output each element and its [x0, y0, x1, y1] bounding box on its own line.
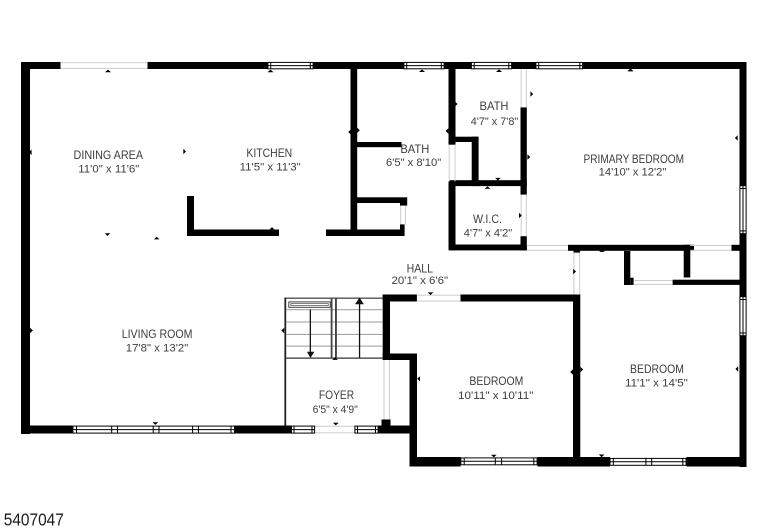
svg-text:17'8" x 13'2": 17'8" x 13'2" [126, 343, 189, 355]
svg-text:BEDROOM: BEDROOM [469, 375, 523, 388]
svg-text:BEDROOM: BEDROOM [630, 363, 684, 376]
svg-text:4'7" x 7'8": 4'7" x 7'8" [471, 116, 519, 128]
svg-text:PRIMARY BEDROOM: PRIMARY BEDROOM [584, 153, 685, 166]
svg-text:LIVING ROOM: LIVING ROOM [122, 328, 193, 341]
svg-text:20'1" x 6'6": 20'1" x 6'6" [392, 275, 449, 287]
svg-text:10'11" x 10'11": 10'11" x 10'11" [458, 390, 533, 402]
svg-text:11'5" x 11'3": 11'5" x 11'3" [240, 162, 301, 174]
svg-text:4'7" x 4'2": 4'7" x 4'2" [464, 227, 512, 239]
svg-text:BATH: BATH [480, 100, 509, 113]
svg-text:6'5" x 4'9": 6'5" x 4'9" [313, 404, 358, 416]
svg-text:DINING AREA: DINING AREA [74, 149, 144, 162]
svg-text:KITCHEN: KITCHEN [246, 147, 292, 160]
svg-text:6'5" x 8'10": 6'5" x 8'10" [386, 157, 441, 169]
svg-text:FOYER: FOYER [319, 389, 354, 402]
svg-text:5407047: 5407047 [4, 510, 64, 530]
svg-text:11'0" x 11'6": 11'0" x 11'6" [78, 163, 139, 175]
svg-text:HALL: HALL [407, 262, 434, 275]
svg-text:11'1" x 14'5": 11'1" x 14'5" [625, 378, 688, 390]
svg-text:14'10" x 12'2": 14'10" x 12'2" [599, 167, 667, 179]
svg-text:BATH: BATH [400, 143, 429, 156]
svg-text:W.I.C.: W.I.C. [473, 213, 502, 226]
